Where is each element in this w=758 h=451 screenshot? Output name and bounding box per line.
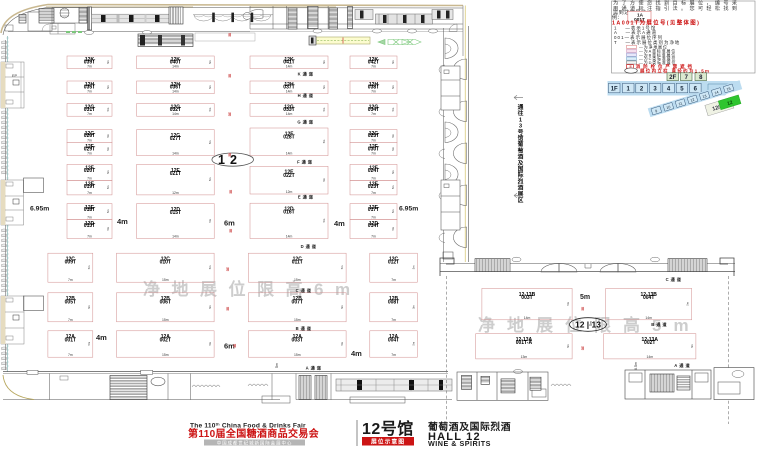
svg-text:B通道: B通道 (651, 321, 668, 328)
svg-text:004T: 004T (643, 295, 654, 301)
svg-text:018T: 018T (84, 207, 95, 213)
svg-text:国: 国 (518, 165, 524, 173)
svg-text:023T: 023T (368, 184, 379, 190)
svg-text:5m: 5m (411, 305, 415, 309)
svg-text:14m: 14m (646, 355, 653, 359)
svg-text:5m: 5m (87, 266, 91, 270)
svg-text:12号馆: 12号馆 (362, 419, 414, 438)
svg-text:5m: 5m (391, 227, 395, 231)
svg-text:展: 展 (518, 190, 524, 198)
svg-text:C通道: C通道 (666, 276, 683, 283)
svg-text:往: 往 (518, 109, 524, 117)
svg-text:016T: 016T (283, 210, 294, 216)
svg-text:7m: 7m (371, 235, 376, 239)
svg-text:中国成都世纪城新国际会展中心: 中国成都世纪城新国际会展中心 (217, 439, 293, 446)
svg-text:5m: 5m (340, 305, 344, 309)
svg-text:001T: 001T (65, 337, 76, 343)
svg-text:4m: 4m (96, 333, 107, 342)
svg-text:015T: 015T (170, 210, 181, 216)
svg-text:7m: 7m (87, 90, 92, 94)
svg-text:5m: 5m (322, 85, 326, 89)
svg-text:5m: 5m (106, 186, 110, 190)
svg-text:及: 及 (518, 159, 524, 167)
svg-text:5m: 5m (87, 342, 91, 346)
svg-text:5m: 5m (391, 85, 395, 89)
svg-text:EP: EP (12, 74, 18, 78)
svg-text:6.95m: 6.95m (30, 206, 49, 213)
svg-text:G通道: G通道 (297, 119, 315, 126)
svg-text:号: 号 (518, 128, 524, 136)
svg-text:5m: 5m (87, 305, 91, 309)
svg-text:5m: 5m (275, 363, 279, 368)
svg-text:5m: 5m (690, 344, 694, 348)
svg-text:5m: 5m (566, 302, 570, 306)
svg-text:7m: 7m (87, 65, 92, 69)
svg-text:6m: 6m (224, 219, 235, 228)
svg-text:区: 区 (518, 196, 524, 204)
svg-text:5m: 5m (106, 108, 110, 112)
svg-text:7m: 7m (68, 278, 73, 282)
svg-text:12 | 13: 12 | 13 (575, 320, 601, 330)
svg-text:003T: 003T (521, 295, 532, 301)
svg-text:5m: 5m (106, 147, 110, 151)
svg-text:4m: 4m (351, 349, 362, 358)
svg-text:5m: 5m (580, 294, 590, 301)
svg-text:5m: 5m (322, 178, 326, 182)
svg-text:酒: 酒 (518, 153, 524, 161)
svg-text:14m: 14m (172, 90, 179, 94)
svg-text:5m: 5m (106, 60, 110, 64)
svg-text:011T: 011T (292, 260, 303, 266)
svg-text:F通道: F通道 (297, 159, 314, 166)
svg-text:013T: 013T (84, 223, 95, 229)
svg-text:009T: 009T (65, 260, 76, 266)
svg-text:5m: 5m (208, 305, 212, 309)
svg-text:1F: 1F (611, 87, 618, 93)
svg-text:14m: 14m (172, 235, 179, 239)
svg-text:5m: 5m (208, 266, 212, 270)
svg-text:6.95m: 6.95m (399, 206, 418, 213)
svg-text:12m: 12m (286, 190, 293, 194)
svg-text:5m: 5m (340, 266, 344, 270)
svg-text:027T: 027T (170, 136, 181, 142)
svg-text:5m: 5m (106, 85, 110, 89)
svg-text:7m: 7m (371, 112, 376, 116)
svg-text:002T: 002T (160, 337, 171, 343)
svg-text:5m: 5m (208, 108, 212, 112)
svg-text:15m: 15m (162, 318, 169, 322)
svg-text:022T: 022T (283, 173, 294, 179)
svg-text:7m: 7m (371, 176, 376, 180)
svg-text:5m: 5m (208, 141, 212, 145)
svg-text:7m: 7m (68, 353, 73, 357)
svg-text:7m: 7m (391, 353, 396, 357)
svg-text:15m: 15m (162, 278, 169, 282)
svg-text:5m: 5m (391, 170, 395, 174)
svg-text:萄: 萄 (517, 146, 524, 154)
svg-text:5m: 5m (391, 147, 395, 151)
svg-text:15m: 15m (294, 318, 301, 322)
svg-text:7m: 7m (371, 139, 376, 143)
svg-text:7m: 7m (391, 318, 396, 322)
svg-text:5m: 5m (391, 186, 395, 190)
svg-text:7m: 7m (87, 152, 92, 156)
svg-text:7m: 7m (87, 216, 92, 220)
svg-text:E通道: E通道 (298, 194, 315, 201)
svg-text:12m: 12m (172, 191, 179, 195)
svg-text:14m: 14m (172, 65, 179, 69)
svg-text:5m: 5m (106, 227, 110, 231)
svg-text:5m: 5m (208, 178, 212, 182)
svg-text:5m: 5m (391, 209, 395, 213)
svg-text:5m: 5m (391, 134, 395, 138)
svg-text:7m: 7m (371, 191, 376, 195)
svg-text:7m: 7m (87, 235, 92, 239)
svg-text:012T: 012T (388, 260, 399, 266)
svg-text:际: 际 (518, 171, 524, 179)
svg-text:5m: 5m (322, 219, 326, 223)
svg-text:5m: 5m (106, 170, 110, 174)
svg-text:2F: 2F (669, 75, 676, 81)
svg-text:7m: 7m (87, 191, 92, 195)
svg-text:葡: 葡 (517, 140, 524, 148)
svg-text:4m: 4m (117, 217, 128, 226)
svg-text:烈: 烈 (518, 177, 524, 185)
svg-text:019T: 019T (84, 184, 95, 190)
svg-text:酒: 酒 (518, 184, 524, 192)
svg-text:15m: 15m (294, 278, 301, 282)
svg-text:14m: 14m (172, 112, 179, 116)
svg-text:13m: 13m (521, 355, 528, 359)
svg-text:5m: 5m (208, 342, 212, 346)
svg-text:14m: 14m (286, 90, 293, 94)
svg-text:7m: 7m (371, 152, 376, 156)
svg-text:5m: 5m (208, 219, 212, 223)
svg-text:第110届全国糖酒商品交易会: 第110届全国糖酒商品交易会 (188, 427, 319, 440)
svg-text:H通道: H通道 (298, 92, 315, 99)
svg-text:15m: 15m (294, 353, 301, 357)
svg-text:017T: 017T (368, 207, 379, 213)
svg-text:5m: 5m (208, 60, 212, 64)
svg-text:7m: 7m (391, 278, 396, 282)
svg-text:024T: 024T (368, 168, 379, 174)
svg-text:4m: 4m (334, 219, 345, 228)
svg-text:5m: 5m (322, 108, 326, 112)
svg-text:5m: 5m (686, 302, 690, 306)
svg-text:14m: 14m (286, 65, 293, 69)
svg-text:C通道: C通道 (296, 287, 313, 294)
svg-text:5m: 5m (391, 108, 395, 112)
svg-text:14m: 14m (286, 112, 293, 116)
svg-text:14m: 14m (286, 152, 293, 156)
svg-text:002T: 002T (644, 340, 655, 346)
svg-text:5m: 5m (322, 140, 326, 144)
svg-text:14m: 14m (172, 152, 179, 156)
svg-text:馆: 馆 (518, 134, 524, 142)
svg-text:B通道: B通道 (296, 325, 313, 332)
svg-text:5m: 5m (106, 134, 110, 138)
svg-text:7m: 7m (87, 112, 92, 116)
svg-text:WINE & SPIRITS: WINE & SPIRITS (428, 439, 491, 446)
svg-text:5m: 5m (322, 60, 326, 64)
svg-text:15m: 15m (162, 353, 169, 357)
svg-text:展位示意图: 展位示意图 (371, 438, 405, 446)
svg-text:006T: 006T (160, 299, 171, 305)
svg-text:7m: 7m (371, 90, 376, 94)
svg-text:005T: 005T (65, 299, 76, 305)
svg-text:7m: 7m (87, 176, 92, 180)
svg-text:7m: 7m (87, 139, 92, 143)
svg-text:A通道: A通道 (674, 362, 691, 369)
svg-text:7m: 7m (371, 65, 376, 69)
svg-text:003T: 003T (292, 337, 303, 343)
svg-text:14m: 14m (524, 316, 531, 320)
svg-text:028T: 028T (283, 135, 294, 141)
svg-text:001T-A: 001T-A (516, 340, 533, 346)
svg-text:007T: 007T (292, 299, 303, 305)
svg-text:14m: 14m (645, 316, 652, 320)
svg-text:5m: 5m (411, 266, 415, 270)
svg-text:通: 通 (518, 103, 524, 111)
svg-text:5m: 5m (208, 85, 212, 89)
svg-text:K通道: K通道 (298, 71, 315, 78)
svg-text:008T: 008T (388, 299, 399, 305)
svg-text:014T: 014T (368, 223, 379, 229)
svg-text:5m: 5m (106, 209, 110, 213)
svg-text:7m: 7m (371, 216, 376, 220)
svg-text:14m: 14m (286, 235, 293, 239)
svg-text:7m: 7m (68, 318, 73, 322)
svg-text:021T: 021T (170, 171, 181, 177)
svg-text:010T: 010T (160, 260, 171, 266)
svg-text:004T: 004T (388, 337, 399, 343)
svg-text:5m: 5m (411, 342, 415, 346)
svg-text:6.5m: 6.5m (634, 362, 638, 370)
svg-text:5m: 5m (566, 344, 570, 348)
svg-text:5m: 5m (391, 60, 395, 64)
svg-text:020T: 020T (84, 168, 95, 174)
svg-text:5m: 5m (340, 342, 344, 346)
svg-text:D通道: D通道 (301, 243, 318, 250)
svg-text:A通道: A通道 (306, 365, 323, 372)
